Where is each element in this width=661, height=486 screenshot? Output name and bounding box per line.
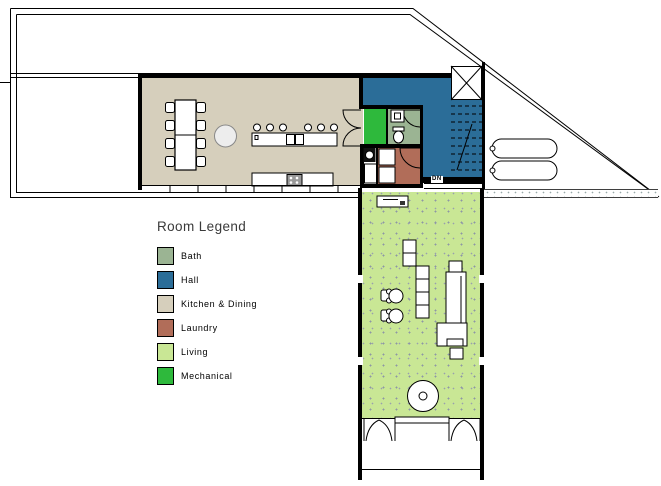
room-living [362,192,480,418]
legend-label-mechanical: Mechanical [181,371,233,381]
legend-swatch-living [157,343,174,361]
legend-swatch-kitchen-dining [157,295,174,313]
legend-swatch-bath [157,247,174,265]
wall-kitchen-hall-upper [359,78,363,109]
wall-cluster-bottom [360,184,423,188]
legend-label-kitchen-dining: Kitchen & Dining [181,299,257,309]
legend-item-laundry: Laundry [157,319,257,336]
legend-label-laundry: Laundry [181,323,218,333]
room-laundry [378,148,420,184]
wall-cluster-left-lower [360,144,364,188]
floor-plan-view: DN Room Legend Bath Hall Kitchen & Dinin… [0,0,661,486]
wall-right-stair [482,62,485,189]
stair-direction-label: DN [431,176,443,183]
wall-top-main [138,73,452,78]
room-hall-stair [451,100,482,177]
room-mechanical [364,109,386,144]
room-hall-side [423,107,451,177]
stair-enclosure [451,66,482,100]
legend-item-hall: Hall [157,271,257,288]
room-kitchen-dining [142,78,363,185]
wall-left-kitchen [138,73,142,190]
kitchen-window-wall [142,186,360,193]
legend-label-bath: Bath [181,251,202,261]
room-hall-top [363,78,451,107]
wall-cluster-right [420,109,423,184]
patio-doors [362,417,480,470]
wall-living-right [480,188,484,480]
room-legend: Room Legend Bath Hall Kitchen & Dining L… [157,219,257,391]
legend-item-living: Living [157,343,257,360]
legend-swatch-mechanical [157,367,174,385]
legend-label-living: Living [181,347,208,357]
legend-item-mechanical: Mechanical [157,367,257,384]
legend-swatch-hall [157,271,174,289]
ground-line [484,189,658,198]
legend-item-kitchen-dining: Kitchen & Dining [157,295,257,312]
legend-label-hall: Hall [181,275,199,285]
stair-direction-text: DN [432,176,442,182]
propane-tanks [490,139,557,180]
legend-item-bath: Bath [157,247,257,264]
legend-title: Room Legend [157,219,257,234]
legend-swatch-laundry [157,319,174,337]
room-bath [388,109,420,144]
